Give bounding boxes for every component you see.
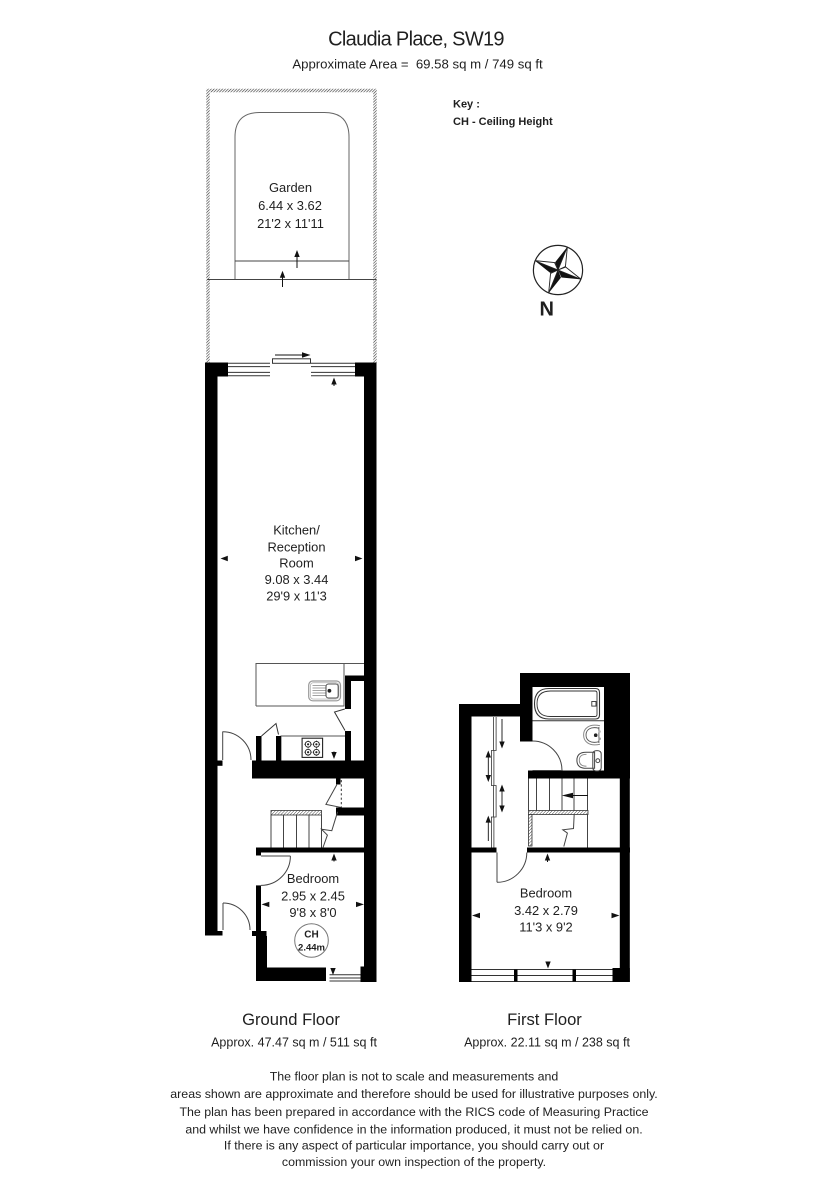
- svg-text:Garden: Garden: [269, 180, 312, 195]
- svg-text:and whilst we have confidence: and whilst we have confidence in the inf…: [185, 1123, 642, 1137]
- svg-text:2.95 x 2.45: 2.95 x 2.45: [281, 889, 345, 904]
- svg-text:Key :: Key :: [453, 99, 480, 111]
- svg-text:The plan has been prepared in: The plan has been prepared in accordance…: [179, 1105, 648, 1119]
- svg-text:CH - Ceiling Height: CH - Ceiling Height: [453, 116, 553, 128]
- svg-text:Reception: Reception: [267, 540, 325, 555]
- svg-text:Ground Floor: Ground Floor: [242, 1010, 340, 1029]
- svg-text:Bedroom: Bedroom: [287, 871, 339, 886]
- svg-text:2.44m: 2.44m: [298, 943, 325, 954]
- svg-text:21'2 x 11'11: 21'2 x 11'11: [257, 216, 324, 231]
- svg-text:First Floor: First Floor: [507, 1010, 582, 1029]
- svg-text:The floor plan is not to scale: The floor plan is not to scale and measu…: [270, 1069, 559, 1083]
- svg-text:N: N: [540, 299, 554, 321]
- svg-text:Kitchen/: Kitchen/: [273, 523, 320, 538]
- svg-text:11'3 x 9'2: 11'3 x 9'2: [519, 920, 572, 935]
- svg-text:Approx. 47.47 sq m / 511 sq ft: Approx. 47.47 sq m / 511 sq ft: [211, 1036, 377, 1050]
- svg-text:If there is any aspect of part: If there is any aspect of particular imp…: [224, 1139, 604, 1153]
- svg-text:3.42 x 2.79: 3.42 x 2.79: [514, 903, 578, 918]
- svg-text:29'9 x 11'3: 29'9 x 11'3: [266, 589, 327, 604]
- svg-text:Room: Room: [279, 556, 313, 571]
- svg-text:6.44 x 3.62: 6.44 x 3.62: [258, 198, 322, 213]
- svg-text:9.08 x 3.44: 9.08 x 3.44: [265, 572, 329, 587]
- svg-text:Approximate Area = 69.58 sq m: Approximate Area = 69.58 sq m / 749 sq f…: [292, 57, 543, 72]
- svg-text:9'8 x 8'0: 9'8 x 8'0: [289, 905, 336, 920]
- svg-text:CH: CH: [304, 930, 318, 941]
- svg-text:Approx. 22.11 sq m / 238 sq ft: Approx. 22.11 sq m / 238 sq ft: [464, 1036, 630, 1050]
- svg-text:commission your own inspection: commission your own inspection of the pr…: [282, 1155, 546, 1169]
- svg-text:Claudia Place, SW19: Claudia Place, SW19: [328, 29, 504, 51]
- svg-text:areas shown are approximate an: areas shown are approximate and therefor…: [170, 1087, 657, 1101]
- svg-text:Bedroom: Bedroom: [520, 886, 572, 901]
